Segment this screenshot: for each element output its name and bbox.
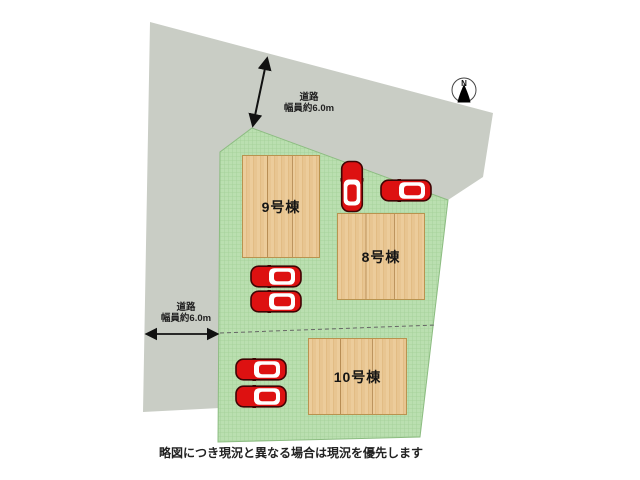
compass-north-label: N [461,79,467,88]
top-road-name: 道路 [272,92,346,103]
site-plan: N 9号棟8号棟10号棟 道路 幅員約6.0m 道路 幅員約6.0m 略図につき… [0,0,640,480]
left-road-name: 道路 [149,302,223,313]
top-road-label: 道路 幅員約6.0m [272,92,346,114]
disclaimer-caption: 略図につき現況と異なる場合は現況を優先します [159,444,421,461]
top-road-width: 幅員約6.0m [272,103,346,114]
left-road-width: 幅員約6.0m [149,313,223,324]
compass-icon: N [452,78,476,103]
left-road-label: 道路 幅員約6.0m [149,302,223,324]
site-plan-map: N [0,0,640,480]
